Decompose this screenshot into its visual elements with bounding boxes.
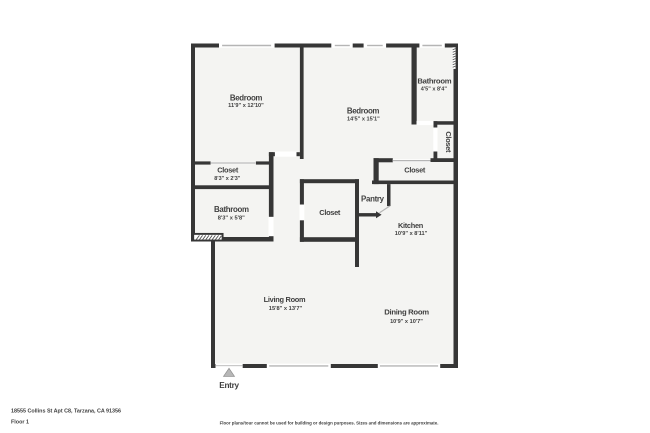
svg-text:Entry: Entry [219, 381, 239, 390]
svg-text:Floor plans/tour cannot be use: Floor plans/tour cannot be used for buil… [220, 421, 439, 426]
svg-text:Bathroom: Bathroom [417, 77, 451, 86]
svg-text:10'9" x 8'11": 10'9" x 8'11" [395, 231, 428, 237]
svg-text:18555 Collins St Apt C8, Tarza: 18555 Collins St Apt C8, Tarzana, CA 913… [11, 408, 121, 414]
svg-text:Dining Room: Dining Room [384, 308, 429, 317]
svg-text:11'9" x 12'10": 11'9" x 12'10" [228, 103, 264, 109]
svg-text:4'5" x 8'4": 4'5" x 8'4" [421, 87, 448, 93]
svg-text:Kitchen: Kitchen [398, 221, 424, 230]
svg-text:Pantry: Pantry [361, 194, 385, 203]
svg-text:Closet: Closet [444, 131, 453, 153]
svg-text:Living Room: Living Room [264, 295, 306, 304]
svg-text:Floor 1: Floor 1 [11, 419, 29, 425]
svg-text:10'9" x 10'7": 10'9" x 10'7" [390, 319, 423, 325]
svg-text:Closet: Closet [217, 166, 239, 175]
svg-text:15'8" x 13'7": 15'8" x 13'7" [269, 306, 303, 312]
svg-text:Bathroom: Bathroom [214, 205, 249, 214]
svg-text:Bedroom: Bedroom [230, 93, 263, 102]
svg-text:Closet: Closet [404, 166, 426, 175]
svg-text:14'5" x 15'1": 14'5" x 15'1" [347, 116, 380, 122]
svg-text:8'3" x 5'8": 8'3" x 5'8" [218, 216, 245, 222]
svg-text:8'3" x 2'3": 8'3" x 2'3" [214, 176, 241, 182]
svg-text:Closet: Closet [319, 208, 341, 217]
svg-text:Bedroom: Bedroom [347, 106, 380, 115]
